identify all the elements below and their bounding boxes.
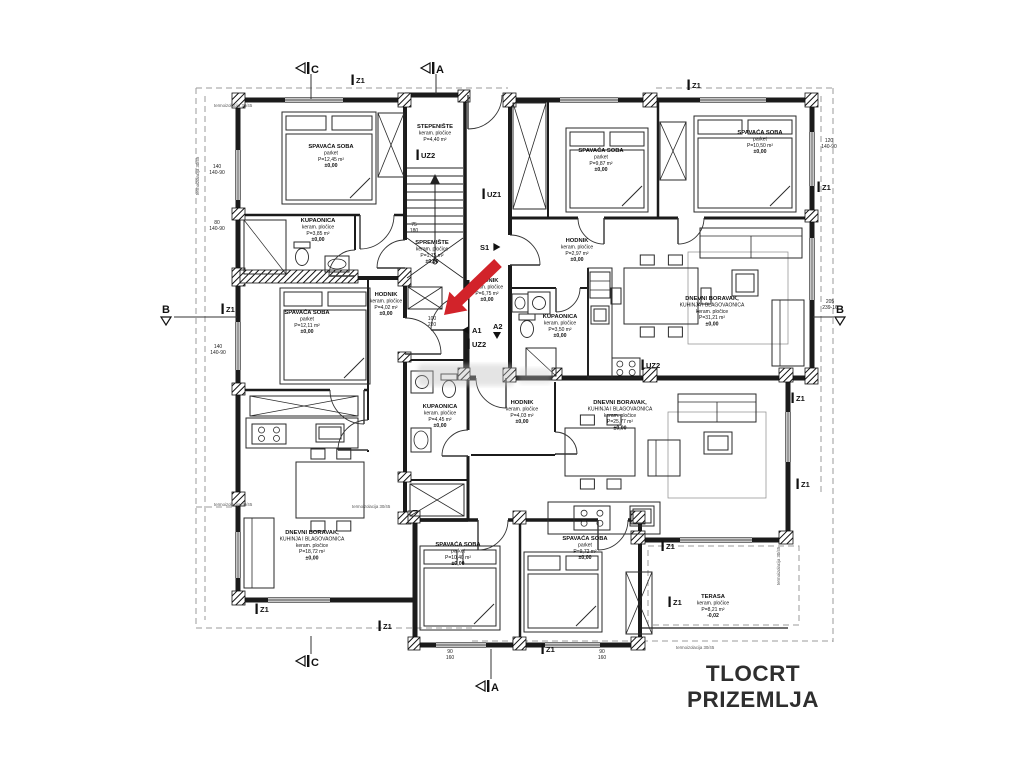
axis-marker-label: Z1 <box>356 76 365 85</box>
direction-marker-label: A2 <box>493 322 503 331</box>
dimension-label: 140140-90 <box>210 344 226 356</box>
axis-marker-label: Z1 <box>822 183 831 192</box>
axis-marker-label: Z1 <box>666 542 675 551</box>
construction-note: termoizolacija 30/45 <box>214 502 253 507</box>
axis-marker-label: UZ2 <box>646 361 660 370</box>
axis-marker-label: Z1 <box>801 480 810 489</box>
construction-note: termoizolacija 30/45 <box>214 103 253 108</box>
room-label: HODNIKkeram. pločiceP=2,97 m²±0,00 <box>561 238 593 263</box>
watermark-smudge <box>418 364 552 386</box>
room-label: KUPAONICAkeram. pločiceP=4,45 m²±0,00 <box>423 404 458 429</box>
construction-note: termoizolacija 30/45 <box>676 645 715 650</box>
section-marker-label: B <box>162 304 170 316</box>
room-label: SPAVAĆA SOBAparketP=9,87 m²±0,00 <box>578 146 624 173</box>
axis-marker-label: UZ2 <box>472 340 486 349</box>
direction-marker-label: A1 <box>472 326 482 335</box>
notes-layer: 140140-9080140-90140140-90120140-9020523… <box>195 103 838 661</box>
construction-note: termoizolacija 30/45 <box>195 156 200 195</box>
dimension-label: 140140-90 <box>209 164 225 176</box>
dimension-label: 205239-16 <box>822 299 838 311</box>
section-marker-label: C <box>311 657 319 669</box>
room-label: DNEVNI BORAVAK,KUHINJA I BLAGOVAONICAker… <box>680 296 745 328</box>
axis-marker-label: Z1 <box>692 81 701 90</box>
room-label: HODNIKkeram. pločiceP=4,02 m²±0,00 <box>370 292 402 317</box>
dimension-label: 100220 <box>428 316 437 328</box>
room-label: DNEVNI BORAVAK,KUHINJA I BLAGOVAONICAker… <box>588 400 653 432</box>
construction-note: termoizolacija 30/45 <box>776 546 781 585</box>
construction-note: termoizolacija 30/45 <box>352 504 391 509</box>
axis-marker-label: Z1 <box>546 645 555 654</box>
setback-dashed-lines <box>196 88 833 642</box>
dimension-label: 90160 <box>598 649 607 661</box>
axis-marker-label: Z1 <box>383 622 392 631</box>
section-marker-label: C <box>311 64 319 76</box>
axis-marker-label: Z1 <box>796 394 805 403</box>
room-label: SPAVAĆA SOBAparketP=10,40 m²±0,00 <box>435 540 481 567</box>
room-label: DNEVNI BORAVAK,KUHINJA I BLAGOVAONICAker… <box>280 530 345 562</box>
axis-marker-label: UZ1 <box>487 190 501 199</box>
room-label: SPAVAĆA SOBAparketP=12,45 m²±0,00 <box>308 142 354 169</box>
axis-marker-label: Z1 <box>673 598 682 607</box>
section-marker-label: A <box>491 682 499 694</box>
room-label: STEPENIŠTEkeram. pločiceP=4,40 m² <box>417 122 453 143</box>
axis-marker-label: Z1 <box>226 305 235 314</box>
room-label: SPAVAĆA SOBAparketP=10,50 m²±0,00 <box>737 128 783 155</box>
room-label: SPAVAĆA SOBAparketP=12,11 m²±0,00 <box>284 308 330 335</box>
room-label: KUPAONICAkeram. pločiceP=3,50 m²±0,00 <box>543 314 578 339</box>
section-marker-label: A <box>436 64 444 76</box>
floor-plan-svg: SPAVAĆA SOBAparketP=12,45 m²±0,00KUPAONI… <box>0 0 1024 768</box>
axis-marker-label: Z1 <box>260 605 269 614</box>
dimension-label: 90160 <box>446 649 455 661</box>
room-label: SPREMIŠTEkeram. pločiceP=1,75 m²±0,00 <box>415 238 449 265</box>
room-label: TERASAkeram. pločiceP=8,21 m²-0,02 <box>697 594 729 619</box>
plan-title: TLOCRT PRIZEMLJA <box>646 661 860 713</box>
dimension-label: 80140-90 <box>209 220 225 232</box>
room-label: HODNIKkeram. pločiceP=4,03 m²±0,00 <box>506 400 538 425</box>
axis-marker-label: UZ2 <box>421 151 435 160</box>
dimension-label: 120140-90 <box>821 138 837 150</box>
direction-marker-label: S1 <box>480 243 489 252</box>
room-label: KUPAONICAkeram. pločiceP=3,85 m²±0,00 <box>301 218 336 243</box>
